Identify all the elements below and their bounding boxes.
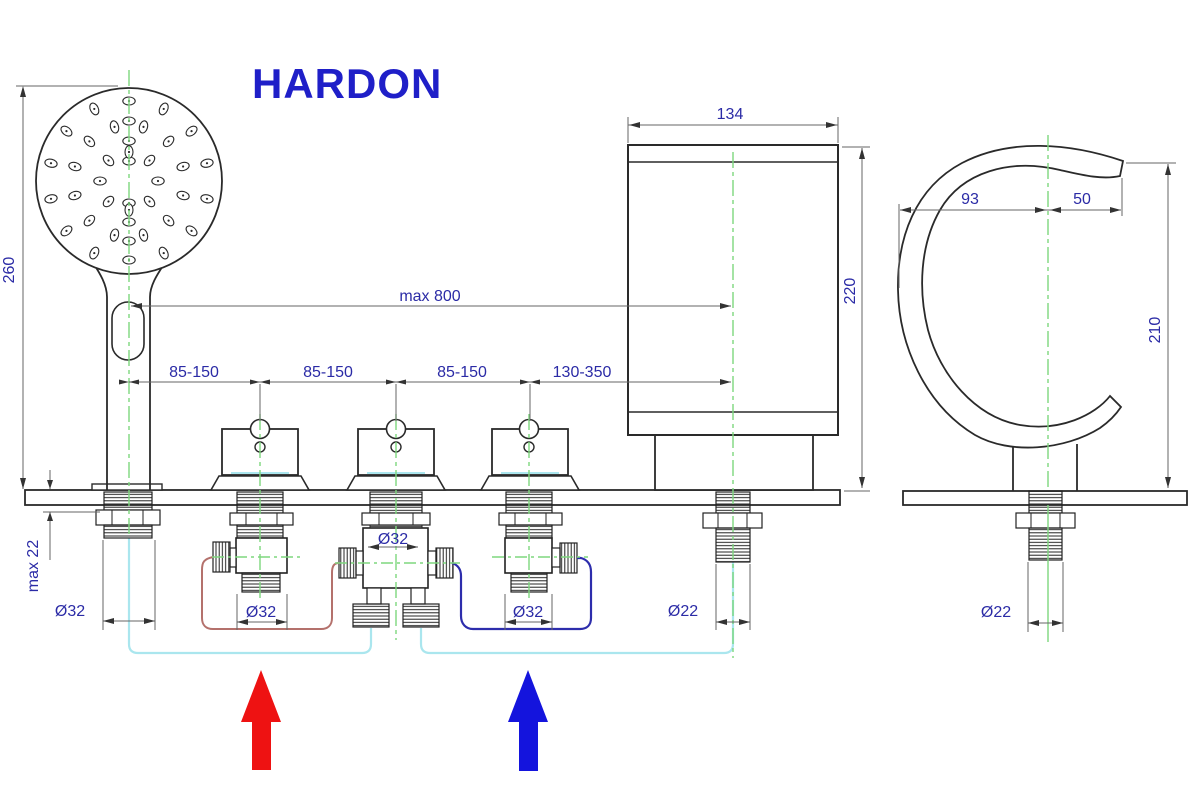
- cold-inlet-arrow: [508, 670, 548, 771]
- dim-spout-front-reach: 50: [1073, 191, 1091, 208]
- dim-shower-length: 260: [1, 257, 18, 284]
- faucet-installation-diagram: HARDON 260 max 22 max 800 85-150 85-150 …: [0, 0, 1200, 800]
- dim-hose-reach: max 800: [399, 288, 460, 305]
- dim-spout-height: 220: [842, 278, 859, 305]
- dim-diverter-hole: Ø32: [378, 531, 408, 548]
- valve3-side-port-cap: [560, 543, 577, 573]
- diverter-bottom-nut-left: [353, 604, 389, 627]
- dim-valve3-hole: Ø32: [513, 604, 543, 621]
- dim-spacing-2: 85-150: [303, 364, 353, 381]
- dim-spout-back-reach: 93: [961, 191, 979, 208]
- diverter-bottom-nut-right: [403, 604, 439, 627]
- shower-escutcheon: [92, 484, 162, 490]
- brand-title: HARDON: [252, 60, 442, 107]
- dim-deck-thickness: max 22: [25, 540, 42, 593]
- shower-shank-threads: [104, 492, 152, 510]
- valve3-underdeck: [499, 492, 577, 592]
- shower-mounting-nut: [96, 510, 160, 525]
- valve1-underdeck: [213, 492, 293, 592]
- dim-side-height: 210: [1147, 317, 1164, 344]
- dim-spacing-1: 85-150: [169, 364, 219, 381]
- hot-inlet-arrow: [241, 670, 281, 770]
- valve1-bottom-port: [242, 573, 280, 592]
- technical-drawing-page: HARDON 260 max 22 max 800 85-150 85-150 …: [0, 0, 1200, 800]
- dim-spout-width: 134: [717, 106, 744, 123]
- dim-valve1-hole: Ø32: [246, 604, 276, 621]
- dim-side-view-hole: Ø22: [981, 604, 1011, 621]
- shower-shank-threads-lower: [104, 525, 152, 538]
- dim-shower-hole: Ø32: [55, 603, 85, 620]
- valve-handles: [211, 420, 579, 491]
- dim-spout-hole: Ø22: [668, 603, 698, 620]
- shower-handle-slot: [112, 302, 144, 360]
- spout-pedestal: [655, 435, 813, 490]
- valve-handle-3: [481, 420, 579, 491]
- side-view-nut: [1016, 513, 1075, 528]
- dim-spacing-3: 85-150: [437, 364, 487, 381]
- dim-spacing-4: 130-350: [553, 364, 612, 381]
